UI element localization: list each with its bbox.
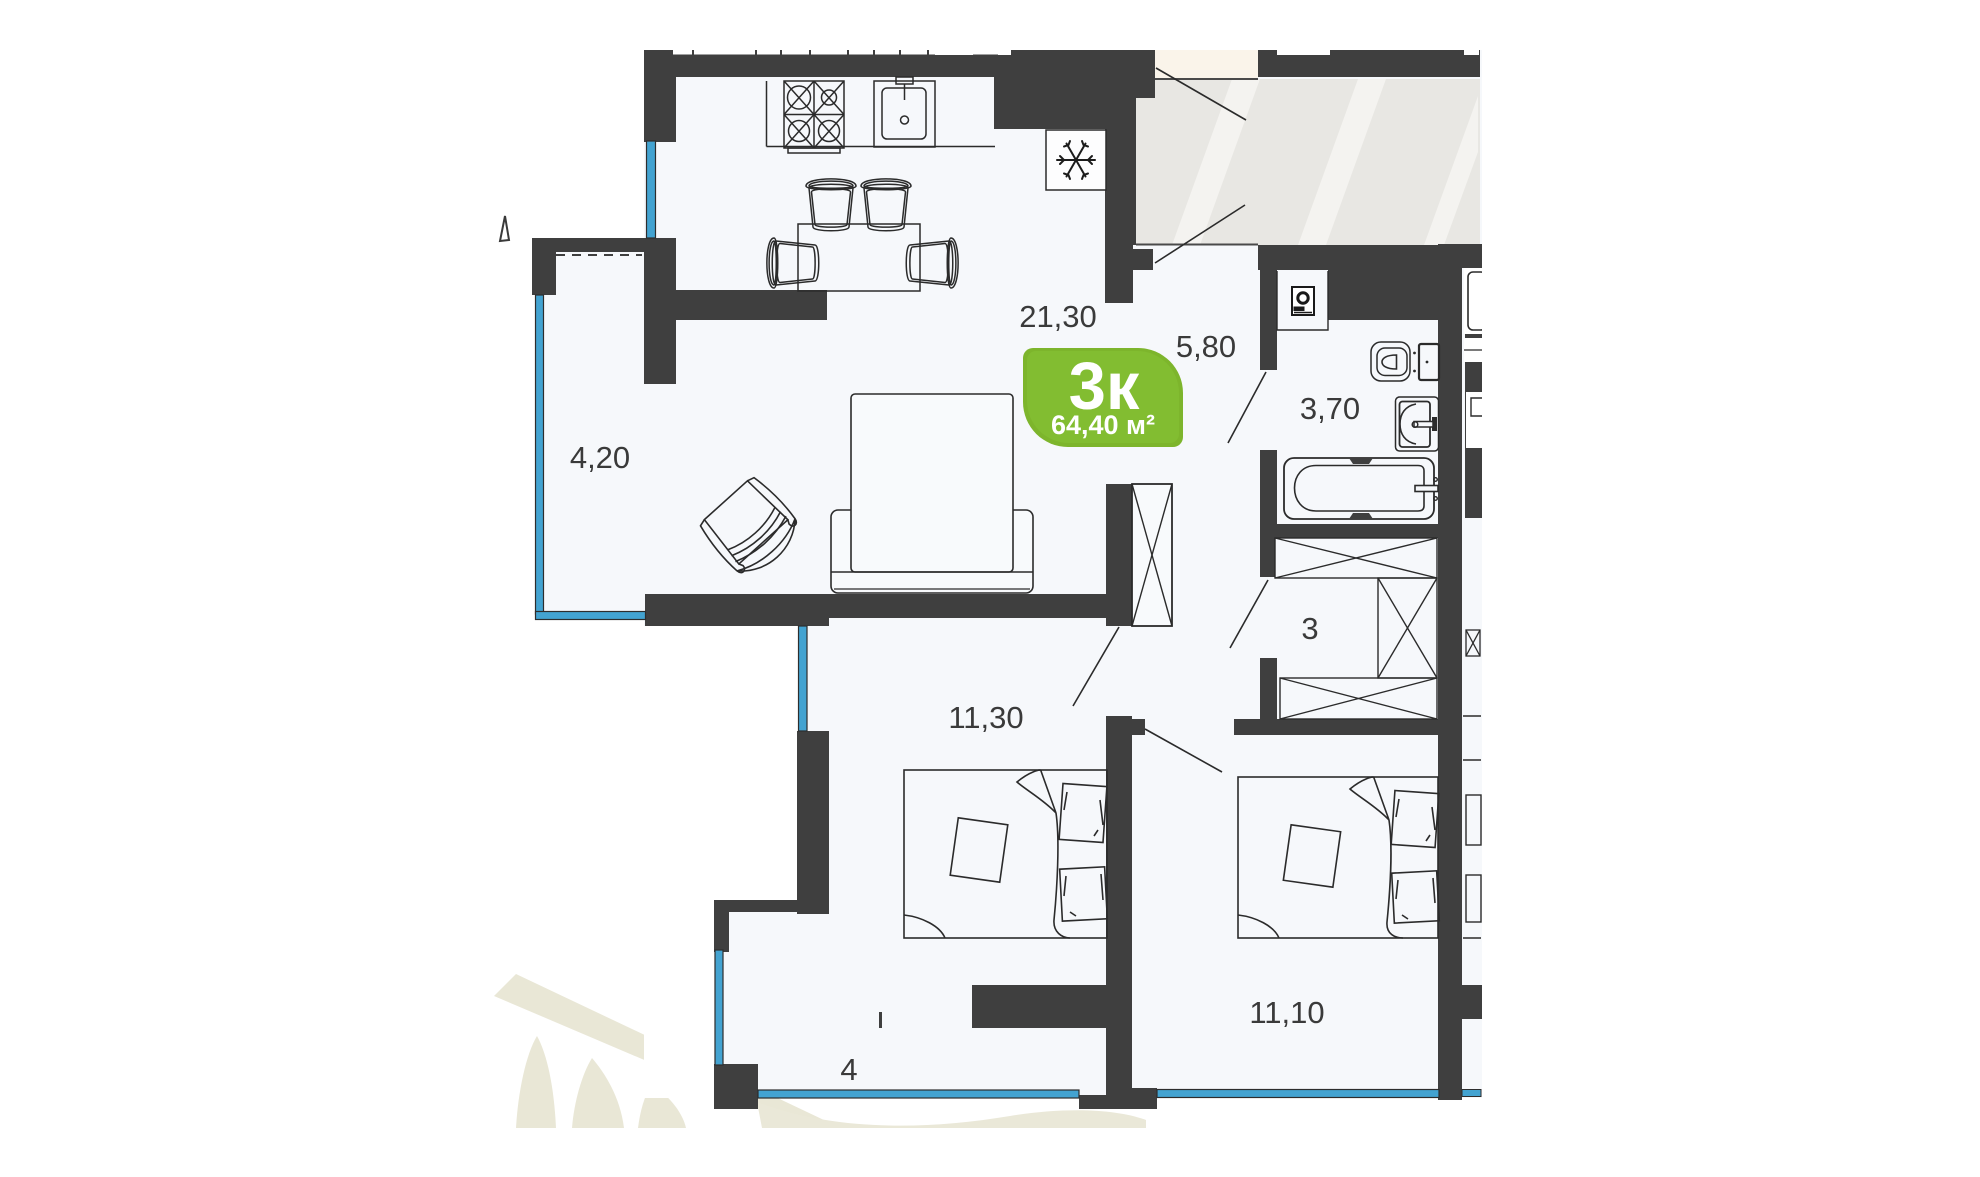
svg-text:3,70: 3,70 [1300, 391, 1360, 426]
svg-text:64,40 м²: 64,40 м² [1051, 410, 1155, 440]
svg-text:11,30: 11,30 [948, 700, 1023, 735]
svg-text:5,80: 5,80 [1176, 329, 1236, 364]
svg-text:3: 3 [1301, 611, 1318, 646]
svg-text:21,30: 21,30 [1019, 299, 1097, 334]
svg-text:4,20: 4,20 [570, 440, 630, 475]
svg-text:11,10: 11,10 [1249, 995, 1324, 1030]
svg-text:4: 4 [840, 1052, 857, 1087]
